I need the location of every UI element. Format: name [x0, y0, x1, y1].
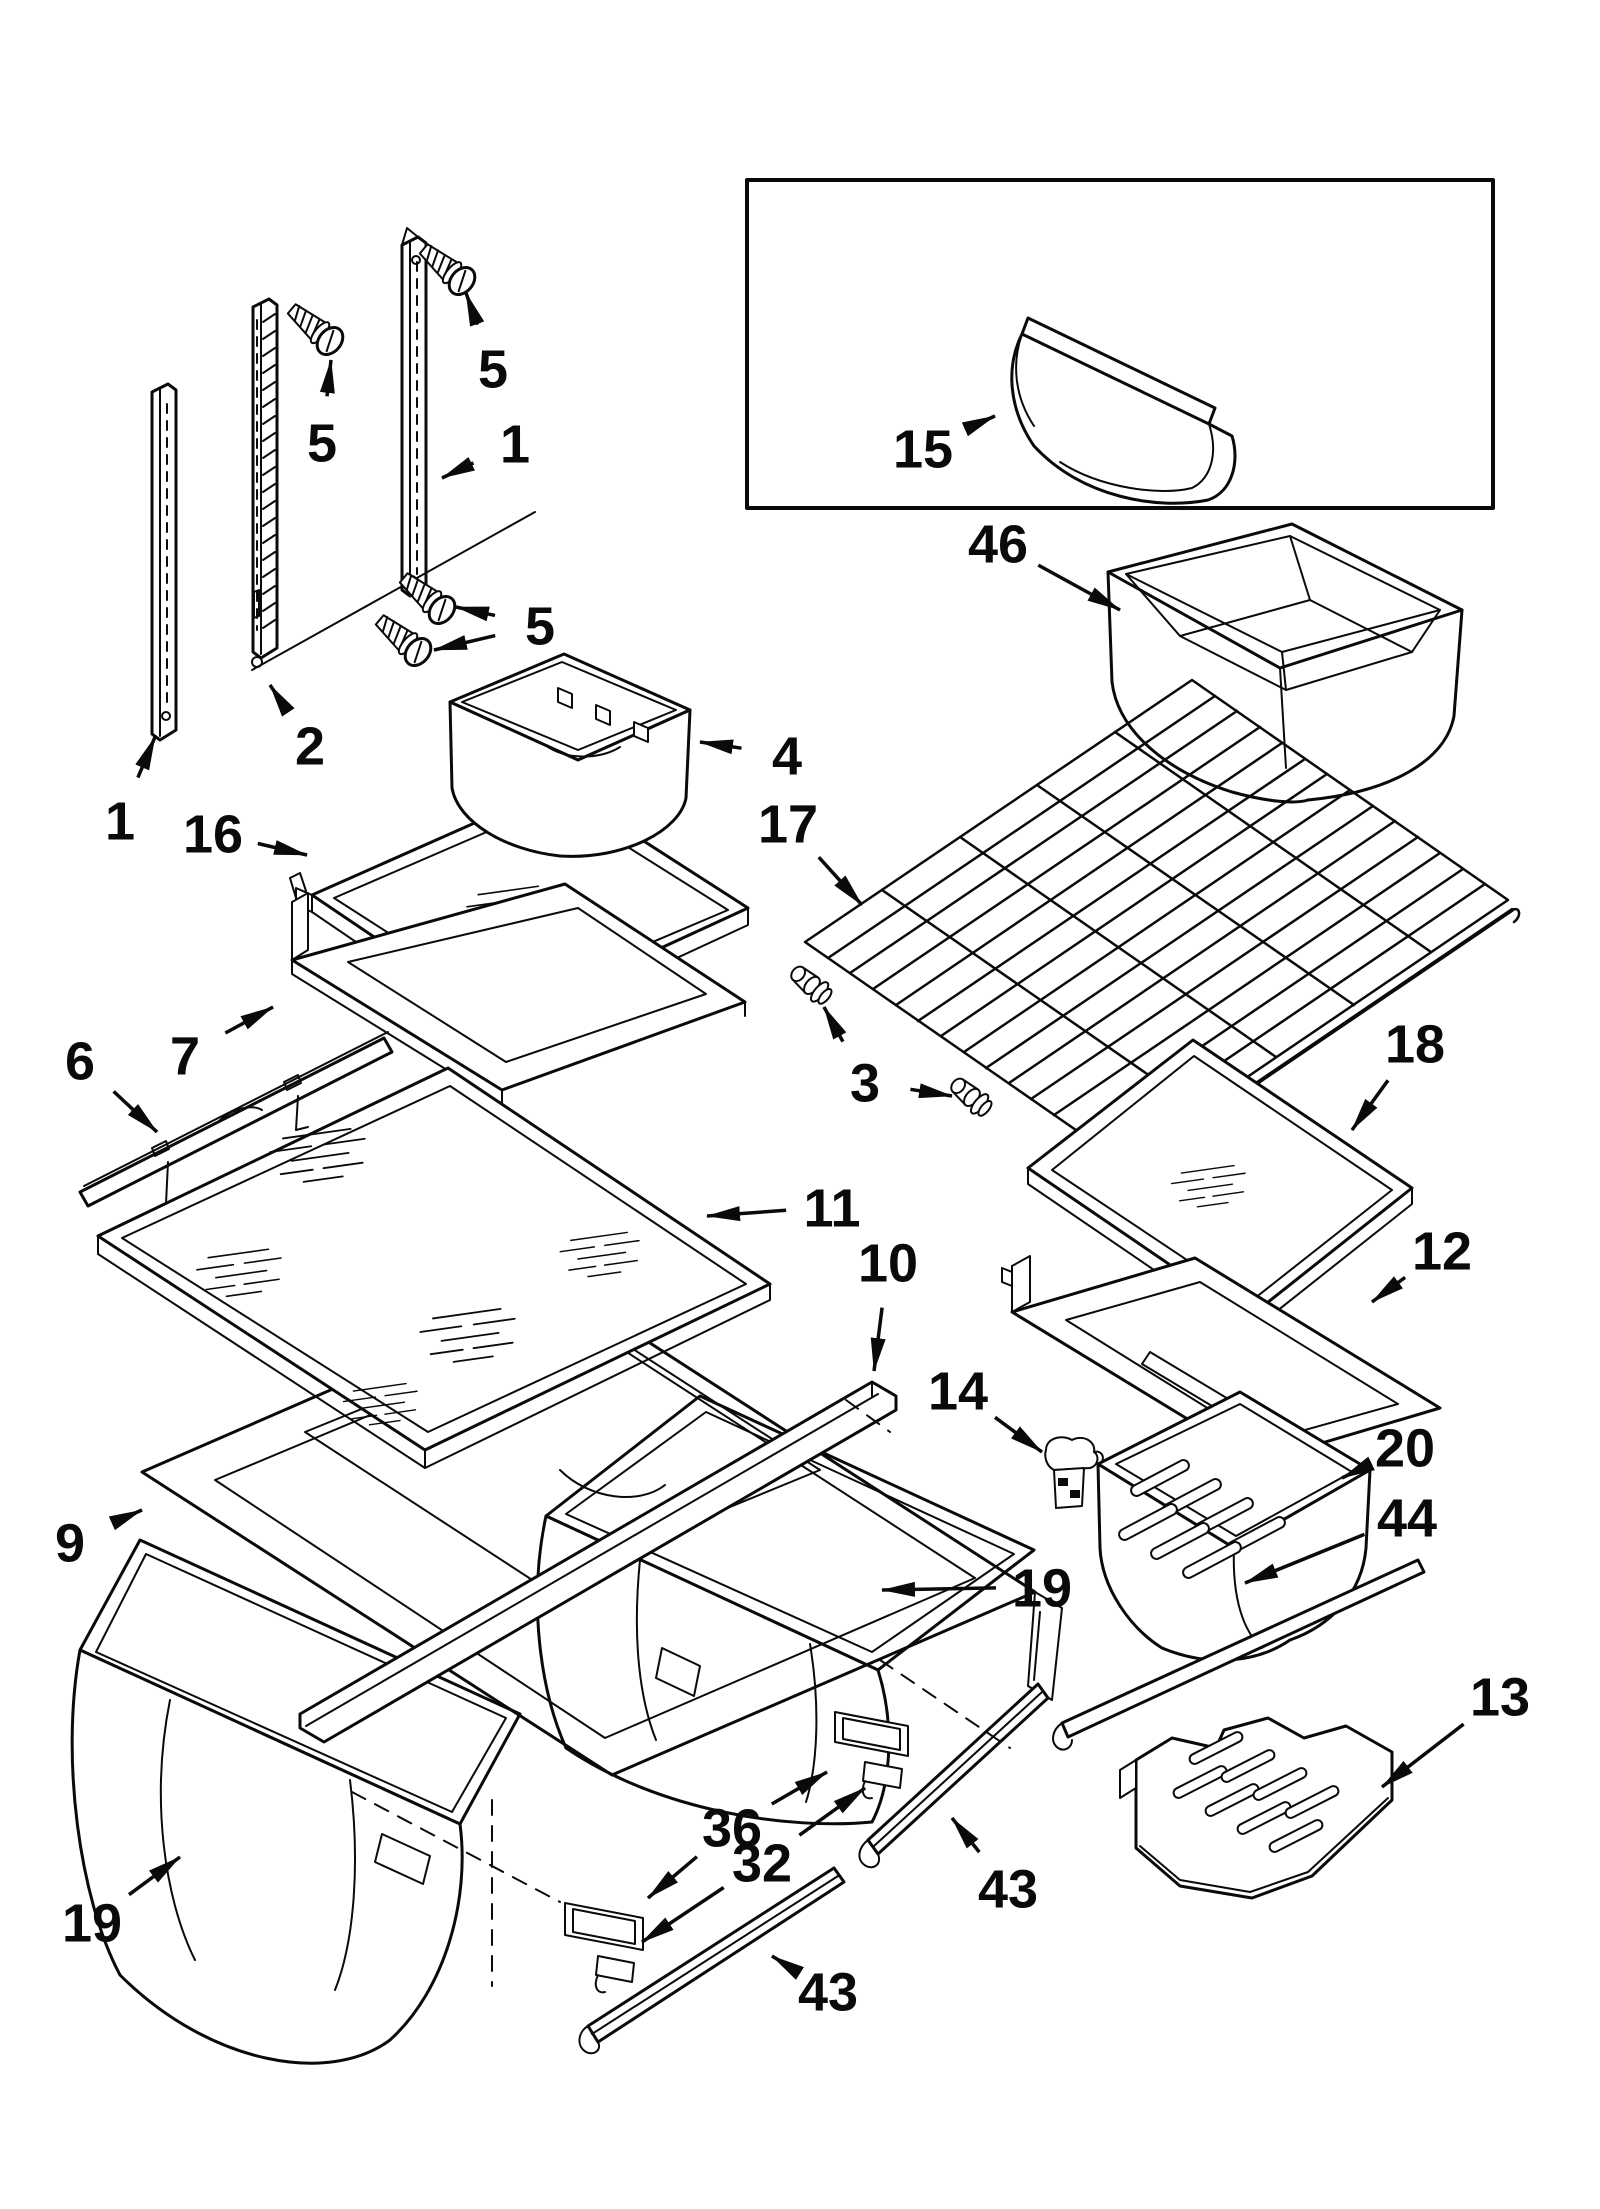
- callout-43-27: 43: [798, 1962, 858, 2022]
- leader-arrow-17-0: [819, 857, 862, 905]
- part-32-clip-left: [596, 1956, 634, 1992]
- parts-diagram-page: 5155211641546173671110181214204419913363…: [0, 0, 1600, 2209]
- leader-arrow-19-0: [882, 1588, 996, 1590]
- leader-arrow-10-0: [874, 1308, 882, 1371]
- leader-arrow-12-0: [1372, 1277, 1405, 1302]
- leader-arrow-16-0: [258, 844, 307, 856]
- part-13-cover: [1120, 1718, 1392, 1898]
- callout-2-4: 2: [295, 716, 325, 776]
- leader-arrow-5-1: [434, 636, 495, 650]
- leader-arrow-9-0: [112, 1510, 142, 1523]
- callout-14-18: 14: [928, 1361, 988, 1421]
- alignment-line: [252, 512, 535, 670]
- leader-arrow-1-0: [138, 737, 155, 778]
- callout-1-1: 1: [500, 414, 530, 474]
- leader-arrow-5-0: [327, 360, 331, 396]
- part-3-shelf-stud: [946, 1073, 996, 1120]
- callout-18-16: 18: [1385, 1014, 1445, 1074]
- callout-17-10: 17: [758, 794, 818, 854]
- callout-11-14: 11: [803, 1178, 860, 1238]
- callout-1-5: 1: [105, 791, 135, 851]
- callout-13-23: 13: [1470, 1667, 1530, 1727]
- leader-arrow-3-1: [910, 1089, 952, 1096]
- leader-arrow-2-0: [270, 685, 285, 707]
- callout-32-25: 32: [732, 1833, 792, 1893]
- callout-6-12: 6: [65, 1031, 95, 1091]
- leader-arrow-7-0: [225, 1007, 273, 1033]
- leader-arrow-43-0: [952, 1818, 979, 1852]
- part-46-meat-pan: [1108, 524, 1462, 802]
- callout-5-3: 5: [525, 596, 555, 656]
- inset-box: [747, 180, 1493, 508]
- leader-arrow-36-1: [648, 1857, 697, 1898]
- leader-arrow-13-0: [1382, 1724, 1464, 1787]
- callout-44-20: 44: [1377, 1488, 1437, 1548]
- leader-arrow-14-0: [995, 1417, 1042, 1452]
- callout-3-11: 3: [850, 1053, 880, 1113]
- leader-arrow-32-1: [642, 1888, 724, 1943]
- exploded-parts-diagram: 5155211641546173671110181214204419913363…: [0, 0, 1600, 2209]
- part-1-shelf-track-right: [402, 228, 426, 596]
- callout-19-21: 19: [1012, 1558, 1072, 1618]
- callout-19-28: 19: [62, 1893, 122, 1953]
- part-5-screw: [370, 608, 436, 670]
- part-14-clip: [1045, 1437, 1103, 1508]
- leader-arrow-18-0: [1352, 1080, 1388, 1130]
- leader-arrow-43-0: [772, 1956, 789, 1967]
- leader-arrow-5-0: [466, 293, 477, 325]
- callout-4-7: 4: [772, 726, 802, 786]
- leader-arrow-1-0: [442, 463, 474, 478]
- callout-5-0: 5: [478, 339, 508, 399]
- part-4-bin: [450, 654, 690, 856]
- part-3-shelf-stud: [786, 961, 836, 1008]
- callout-43-26: 43: [978, 1859, 1038, 1919]
- callout-46-9: 46: [968, 514, 1028, 574]
- part-19-crisper-pan-left: [72, 1540, 520, 2063]
- part-15-trim-channel: [1012, 318, 1235, 503]
- part-5-screw: [282, 297, 348, 359]
- leader-arrow-3-0: [824, 1007, 843, 1042]
- callout-16-6: 16: [183, 804, 243, 864]
- leader-arrow-11-0: [707, 1210, 786, 1216]
- callout-12-17: 12: [1412, 1221, 1472, 1281]
- callout-5-2: 5: [307, 413, 337, 473]
- part-36-clip-left: [565, 1903, 643, 1950]
- callout-7-13: 7: [170, 1026, 200, 1086]
- leader-arrow-15-0: [965, 416, 995, 429]
- leader-arrow-6-0: [114, 1091, 157, 1132]
- leader-arrow-5-0: [456, 607, 495, 615]
- part-2-center-track: [252, 299, 277, 667]
- leader-arrow-4-0: [700, 742, 742, 748]
- callout-9-22: 9: [55, 1513, 85, 1573]
- callout-20-19: 20: [1375, 1418, 1435, 1478]
- part-1-shelf-track-left: [152, 384, 176, 740]
- callout-15-8: 15: [893, 419, 953, 479]
- callout-10-15: 10: [858, 1233, 918, 1293]
